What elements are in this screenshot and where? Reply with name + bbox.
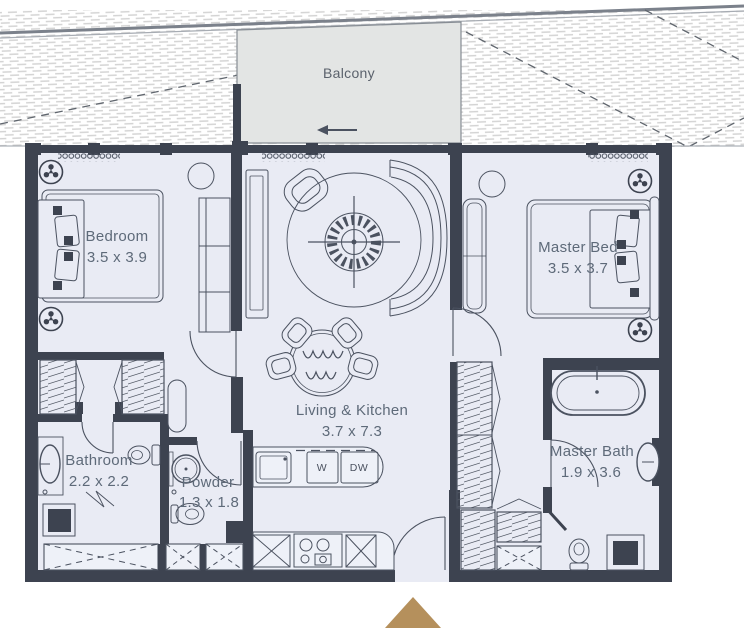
hall-cabinet-pill	[168, 380, 186, 432]
master-bed-label: Master Bed	[538, 239, 618, 256]
wall-powder-kitchen	[243, 430, 253, 572]
bathroom-dims: 2.2 x 2.2	[69, 473, 129, 490]
balcony-label: Balcony	[323, 65, 375, 81]
wall-right	[659, 145, 672, 582]
wall-bathroom-top-a	[38, 414, 82, 422]
wall-bottom-right	[449, 570, 672, 582]
storage-divider-2	[200, 544, 206, 570]
wall-bedroom-living	[231, 153, 242, 331]
wall-powder-notch	[226, 521, 243, 543]
living-label: Living & Kitchen	[296, 402, 408, 419]
curtain-icon-bedroom	[58, 154, 120, 162]
lamp-icon-master	[479, 171, 505, 197]
balcony-slab	[237, 22, 461, 143]
powder-dims: 1.3 x 1.8	[179, 494, 239, 511]
bathroom-label: Bathroom	[65, 452, 132, 469]
wall-powder-top	[169, 437, 197, 445]
cabinet-hatch-icon-2	[497, 512, 541, 542]
curtain-icon-living	[262, 154, 325, 162]
master-bed-dims: 3.5 x 3.7	[548, 260, 608, 277]
floor-plan-svg: Balcony	[0, 0, 744, 629]
bedroom-dims: 3.5 x 3.9	[87, 249, 147, 266]
wall-masterbath-left	[543, 370, 552, 440]
living-dims: 3.7 x 7.3	[322, 423, 382, 440]
balcony: Balcony	[233, 22, 461, 144]
wall-vestibule	[231, 377, 243, 433]
washer-label: W	[317, 462, 327, 474]
curtain-icon-master	[588, 154, 648, 162]
balcony-wall-stub	[233, 84, 241, 144]
storage-box-3	[206, 544, 243, 570]
floor-plan: Balcony	[0, 0, 744, 629]
master-bed-icon	[590, 197, 659, 320]
wall-wardrobe-back	[450, 362, 457, 510]
storage-box-1	[44, 544, 158, 570]
bathtub-icon	[551, 366, 645, 415]
wall-bottom-left	[25, 570, 395, 582]
wardrobe-icon-b	[122, 360, 164, 414]
entrance-threshold-floor	[395, 555, 449, 582]
wall-master-bottom	[543, 358, 659, 370]
wall-living-master	[450, 153, 462, 310]
wall-top	[25, 145, 672, 153]
masterbath-sink-icon	[637, 443, 659, 481]
storage-box-4	[497, 546, 541, 570]
dishwasher-label: DW	[350, 462, 369, 474]
entrance-marker	[385, 597, 441, 628]
storage-divider-1	[158, 544, 166, 570]
master-bath-label: Master Bath	[550, 443, 634, 460]
wall-bathroom-top-b	[113, 414, 160, 422]
powder-label: Powder	[182, 474, 235, 491]
lamp-icon-bedroom	[188, 163, 214, 189]
kitchen-counter	[253, 532, 394, 570]
wardrobe-icon-a	[40, 360, 76, 414]
cabinet-hatch-icon-1	[461, 510, 495, 570]
wall-bedroom-bottom	[38, 352, 164, 360]
bedroom-label: Bedroom	[86, 228, 149, 245]
storage-box-2	[166, 544, 200, 570]
bed-icon	[38, 200, 84, 298]
master-bath-dims: 1.9 x 3.6	[561, 464, 621, 481]
wall-left	[25, 145, 38, 582]
